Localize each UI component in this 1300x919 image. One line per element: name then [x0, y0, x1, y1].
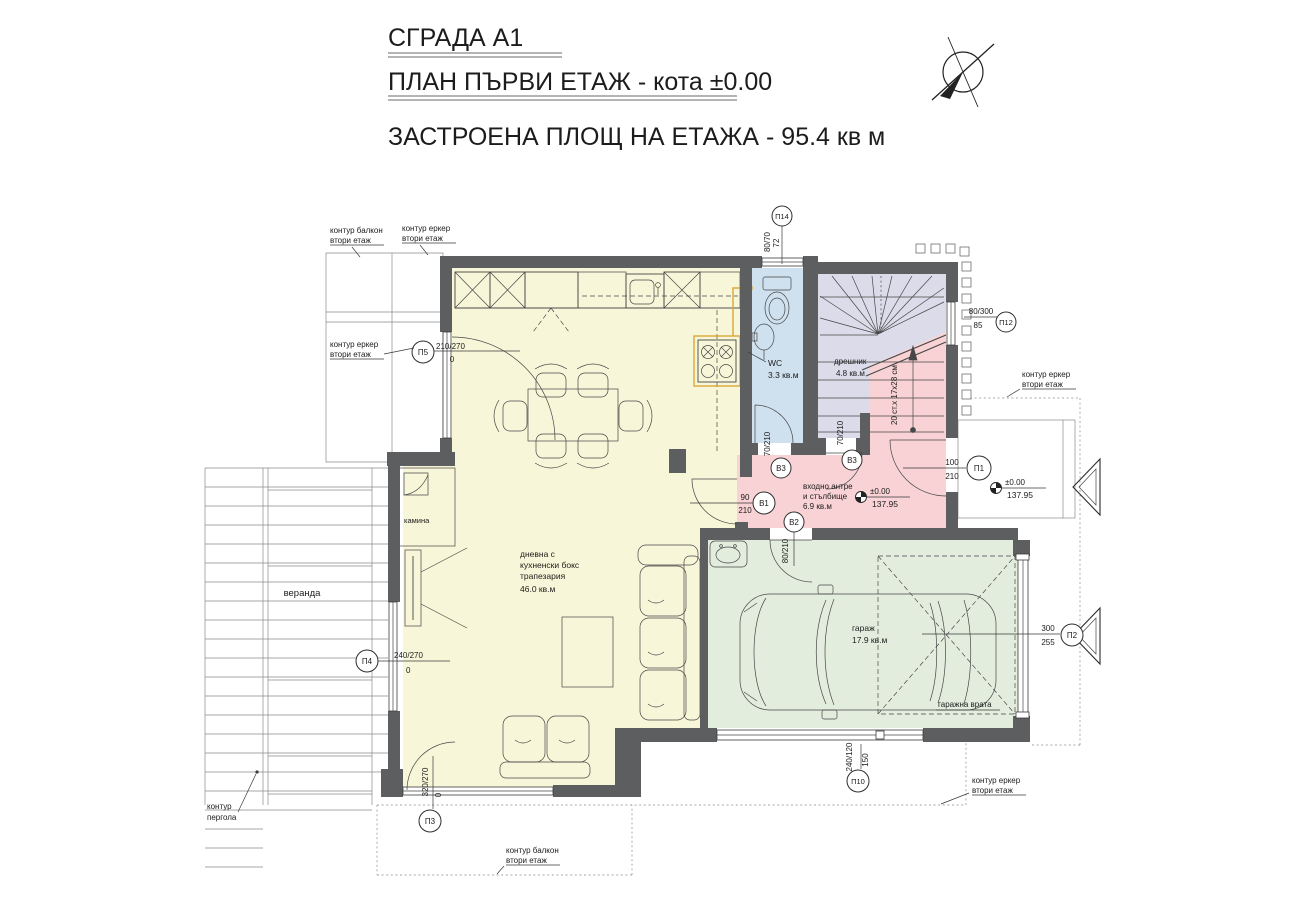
living-label-3: трапезария	[520, 571, 566, 581]
label-contour-bay-left: контур еркер втори етаж	[330, 340, 414, 359]
floor-plan-page: СГРАДА А1 ПЛАН ПЪРВИ ЕТАЖ - кота ±0.00 З…	[0, 0, 1300, 919]
living-label-2: кухненски бокс	[520, 560, 580, 570]
label-contour-bay-right: контур еркер втори етаж	[1007, 370, 1076, 397]
page-title: СГРАДА А1	[388, 24, 523, 52]
tag-p1: П1	[974, 464, 985, 473]
floor-plan-drawing: СГРАДА А1 ПЛАН ПЪРВИ ЕТАЖ - кота ±0.00 З…	[0, 0, 1300, 919]
dim-p14: 80/70	[763, 231, 772, 252]
plan-subtitle: ПЛАН ПЪРВИ ЕТАЖ - кота ±0.00	[388, 68, 772, 96]
label-contour-balcony-bottom: контур балкон втори етаж	[497, 846, 560, 874]
window-p10	[717, 730, 923, 740]
dim-p3: 320/270	[421, 767, 430, 796]
label-contour-balcony-topleft: контур балкон втори етаж	[330, 226, 384, 257]
north-arrow-icon	[932, 37, 994, 107]
closet-label: дрешник	[834, 357, 867, 366]
level-rel-porch: ±0.00	[1005, 478, 1026, 487]
sill-p10: 150	[861, 753, 870, 767]
garage-area: 17.9 кв.м	[852, 635, 888, 645]
tag-p10: П10	[851, 777, 865, 786]
svg-text:контур балкон: контур балкон	[330, 226, 383, 235]
svg-text:контур еркер: контур еркер	[402, 224, 451, 233]
hall-area: 6.9 кв.м	[803, 502, 832, 511]
svg-text:втори етаж: втори етаж	[402, 234, 443, 243]
tag-v1: В1	[759, 499, 769, 508]
dim-p2-h: 255	[1041, 638, 1055, 647]
living-label-1: дневна с	[520, 549, 556, 559]
svg-text:контур балкон: контур балкон	[506, 846, 559, 855]
room-wc	[752, 268, 803, 443]
svg-text:втори етаж: втори етаж	[330, 236, 371, 245]
dim-v2: 80/210	[781, 538, 790, 563]
level-abs-porch: 137.95	[1007, 490, 1033, 500]
svg-text:втори етаж: втори етаж	[330, 350, 371, 359]
svg-text:пергола: пергола	[207, 813, 237, 822]
dim-v3-closet: 70/210	[836, 420, 845, 445]
svg-text:контур еркер: контур еркер	[1022, 370, 1071, 379]
svg-text:контур еркер: контур еркер	[330, 340, 379, 349]
hall-label-2: и стълбище	[803, 492, 848, 501]
sill-p3: 0	[434, 792, 443, 797]
wc-area: 3.3 кв.м	[768, 370, 799, 380]
tag-v2: В2	[789, 518, 799, 527]
window-p14	[762, 258, 803, 266]
veranda-label: веранда	[284, 588, 322, 599]
tag-p14: П14	[775, 212, 789, 221]
closet-area: 4.8 кв.м	[836, 369, 865, 378]
svg-text:втори етаж: втори етаж	[1022, 380, 1063, 389]
level-rel-hall: ±0.00	[870, 487, 891, 496]
tag-p5: П5	[418, 348, 429, 357]
sill-p4: 0	[406, 666, 411, 675]
level-marker-porch: ±0.00 137.95	[991, 478, 1047, 500]
tag-p4: П4	[362, 657, 373, 666]
area-note: ЗАСТРОЕНА ПЛОЩ НА ЕТАЖА - 95.4 кв м	[388, 123, 885, 151]
title-block: СГРАДА А1 ПЛАН ПЪРВИ ЕТАЖ - кота ±0.00 З…	[388, 24, 885, 151]
dim-p1-h: 210	[945, 472, 959, 481]
tag-v3-wc: В3	[776, 464, 786, 473]
label-contour-pergola: контур пергола	[207, 770, 259, 822]
svg-text:контур еркер: контур еркер	[972, 776, 1021, 785]
dim-v1-h: 210	[738, 506, 752, 515]
sill-p14: 72	[772, 238, 781, 247]
dim-p2-w: 300	[1041, 624, 1055, 633]
dim-v3-wc: 70/210	[763, 431, 772, 456]
column	[669, 449, 686, 473]
sill-p5: 0	[450, 355, 455, 364]
svg-text:контур: контур	[207, 802, 232, 811]
tag-v3-closet: В3	[847, 456, 857, 465]
room-fills	[403, 268, 1020, 787]
sill-p12: 85	[974, 321, 983, 330]
garage-label: гараж	[852, 623, 875, 633]
garage-door-label: гаражна врата	[938, 700, 992, 709]
dim-v1-w: 90	[741, 493, 750, 502]
fireplace-label: камина	[404, 516, 430, 525]
tag-p12: П12	[999, 318, 1013, 327]
svg-text:втори етаж: втори етаж	[972, 786, 1013, 795]
wc-label: WC	[768, 358, 782, 368]
tag-p3: П3	[425, 817, 436, 826]
level-abs-hall: 137.95	[872, 499, 898, 509]
dim-p10: 240/120	[845, 742, 854, 771]
stairs-note: 20 ст.х 17х28 см	[890, 365, 899, 425]
dim-p12: 80/300	[969, 307, 994, 316]
label-contour-bay-top: контур еркер втори етаж	[402, 224, 456, 255]
hall-label-1: входно антре	[803, 482, 853, 491]
living-area: 46.0 кв.м	[520, 584, 556, 594]
dim-p4: 240/270	[394, 651, 423, 660]
garage-door-p2	[1016, 554, 1029, 718]
label-contour-bay-bottomright: контур еркер втори етаж	[941, 776, 1026, 804]
svg-text:втори етаж: втори етаж	[506, 856, 547, 865]
tag-p2: П2	[1067, 631, 1078, 640]
dim-p1-w: 100	[945, 458, 959, 467]
dim-p5: 210/270	[436, 342, 465, 351]
window-p12	[947, 302, 955, 345]
